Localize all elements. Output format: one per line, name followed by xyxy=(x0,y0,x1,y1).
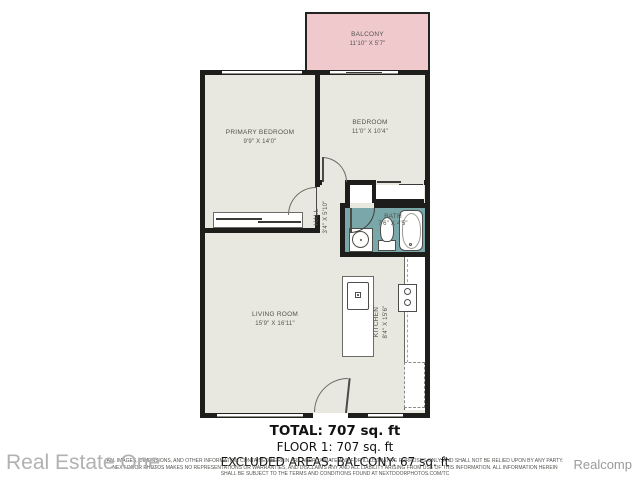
room-dims: 11'10" X 5'7" xyxy=(305,40,430,49)
wall-segment xyxy=(398,70,430,75)
room-dims: 7'6" X 4'5" xyxy=(365,221,421,229)
refrigerator xyxy=(404,362,425,408)
bath-sink-drain-icon xyxy=(360,239,362,241)
closet-sliding-door xyxy=(399,184,423,186)
disclaimer-line-1: ALL IMAGES, DIMENSIONS, AND OTHER INFORM… xyxy=(105,458,565,465)
wall-segment xyxy=(403,413,430,418)
total-area-text: TOTAL: 707 sq. ft xyxy=(35,423,635,439)
disclaimer-line-3: SHALL BE SUBJECT TO THE TERMS AND CONDIT… xyxy=(105,471,565,478)
watermark-real-estate-one: Real Estate One xyxy=(6,451,160,475)
room-label-primary-bedroom: PRIMARY BEDROOM 9'9" X 14'0" xyxy=(200,128,320,147)
kitchen-sink-drain-icon xyxy=(357,294,359,296)
room-label-kitchen: KITCHEN 8'4" X 15'6" xyxy=(372,287,394,357)
window xyxy=(217,413,303,418)
closet-hall xyxy=(350,185,372,203)
room-name: LIVING ROOM xyxy=(205,310,345,320)
room-name: KITCHEN xyxy=(372,287,382,357)
room-name: PRIMARY BEDROOM xyxy=(200,128,320,138)
wall-segment xyxy=(315,180,322,185)
door-leaf xyxy=(322,157,324,182)
floor-plan-page: BALCONY 11'10" X 5'7" xyxy=(0,0,640,480)
room-label-bath: BATH 7'6" X 4'5" xyxy=(365,213,421,229)
room-label-bedroom: BEDROOM 11'0" X 10'4" xyxy=(315,118,425,137)
stove-burner-icon xyxy=(404,299,411,306)
closet-sliding-door xyxy=(216,218,262,220)
wall-segment xyxy=(205,228,320,233)
room-name: BATH xyxy=(365,213,421,221)
door-leaf xyxy=(350,208,352,233)
room-dims: 3'4" X 5'10" xyxy=(322,187,331,247)
room-dims: 9'9" X 14'0" xyxy=(200,138,320,147)
room-dims: 15'9" X 16'11" xyxy=(205,320,345,329)
room-label-hall: HALL 3'4" X 5'10" xyxy=(312,187,334,247)
room-label-balcony: BALCONY 11'10" X 5'7" xyxy=(305,30,430,49)
wall-segment xyxy=(200,413,217,418)
sliding-door-track xyxy=(346,72,382,74)
wall-segment xyxy=(424,180,430,185)
wall-segment xyxy=(303,413,313,418)
window xyxy=(222,70,302,75)
closet-bedroom xyxy=(376,185,424,199)
room-name: BEDROOM xyxy=(315,118,425,128)
room-dims: 11'0" X 10'4" xyxy=(315,128,425,137)
room-name: BALCONY xyxy=(305,30,430,40)
wall-segment xyxy=(425,70,430,418)
closet-sliding-door xyxy=(258,221,301,223)
room-dims: 8'4" X 15'6" xyxy=(382,287,391,357)
wall-segment xyxy=(200,70,205,418)
room-name: HALL xyxy=(312,187,322,247)
room-label-living-room: LIVING ROOM 15'9" X 16'11" xyxy=(205,310,345,329)
wall-segment xyxy=(200,70,222,75)
disclaimer-text: ALL IMAGES, DIMENSIONS, AND OTHER INFORM… xyxy=(105,458,565,478)
window xyxy=(368,413,403,418)
watermark-realcomp: Realcomp xyxy=(573,457,632,472)
closet-sliding-door xyxy=(377,181,401,183)
bathtub-drain-icon xyxy=(409,243,412,246)
stove-burner-icon xyxy=(404,288,411,295)
wall-segment xyxy=(348,413,368,418)
